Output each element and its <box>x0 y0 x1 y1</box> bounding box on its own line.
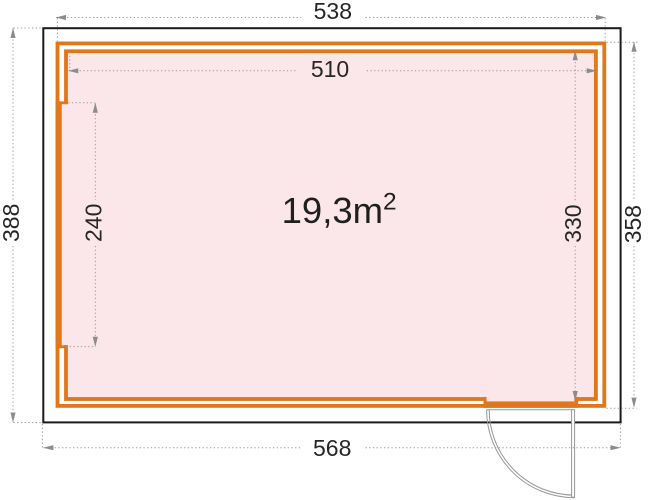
svg-text:568: 568 <box>313 435 351 461</box>
svg-text:510: 510 <box>311 56 349 82</box>
svg-text:538: 538 <box>314 0 352 24</box>
svg-text:330: 330 <box>560 204 586 242</box>
svg-text:19,3m2: 19,3m2 <box>282 189 397 231</box>
svg-text:240: 240 <box>81 204 107 242</box>
svg-text:358: 358 <box>620 205 646 243</box>
svg-text:388: 388 <box>0 204 24 242</box>
